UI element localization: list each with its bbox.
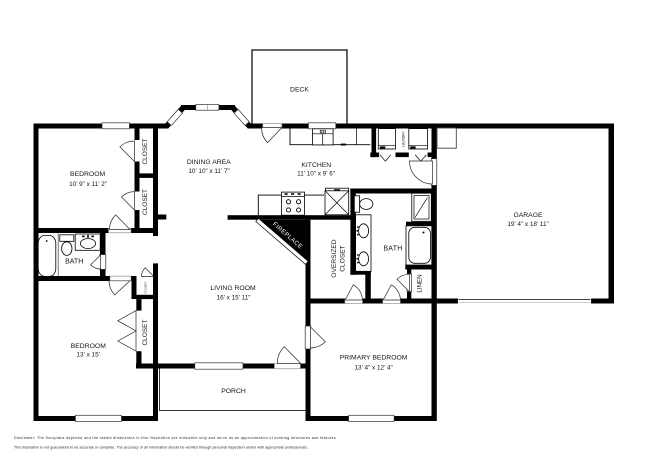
svg-text:LINEN: LINEN bbox=[417, 274, 424, 292]
svg-text:Disclaimer: The floorplans dep: Disclaimer: The floorplans depicted and … bbox=[14, 436, 337, 440]
svg-text:CLOSET: CLOSET bbox=[144, 281, 148, 293]
svg-text:This illustration is not guara: This illustration is not guaranteed to b… bbox=[14, 445, 308, 449]
svg-text:10’ 10” x 11’ 7”: 10’ 10” x 11’ 7” bbox=[188, 168, 229, 175]
svg-text:DINING AREA: DINING AREA bbox=[187, 159, 231, 166]
svg-text:GARAGE: GARAGE bbox=[513, 212, 543, 219]
svg-text:PORCH: PORCH bbox=[221, 388, 246, 395]
svg-text:13’ 4” x 12’ 4”: 13’ 4” x 12’ 4” bbox=[354, 364, 392, 371]
svg-text:11’ 10” x 9’ 6”: 11’ 10” x 9’ 6” bbox=[297, 171, 335, 178]
svg-text:LIVING ROOM: LIVING ROOM bbox=[210, 285, 256, 292]
svg-text:16’ x 15’ 11”: 16’ x 15’ 11” bbox=[217, 295, 251, 302]
svg-text:KITCHEN: KITCHEN bbox=[301, 162, 331, 169]
svg-text:CLOSET: CLOSET bbox=[142, 189, 149, 215]
svg-text:LAUNDRY: LAUNDRY bbox=[401, 130, 405, 146]
svg-text:BEDROOM: BEDROOM bbox=[71, 343, 106, 350]
svg-text:PRIMARY BEDROOM: PRIMARY BEDROOM bbox=[340, 355, 408, 362]
svg-text:OVERSIZED: OVERSIZED bbox=[331, 239, 338, 277]
svg-text:10’ 9” x 11’ 2”: 10’ 9” x 11’ 2” bbox=[69, 181, 107, 188]
svg-text:DECK: DECK bbox=[290, 86, 309, 93]
svg-text:BATH: BATH bbox=[65, 258, 83, 265]
svg-text:BATH: BATH bbox=[383, 245, 402, 252]
svg-text:BEDROOM: BEDROOM bbox=[70, 171, 105, 178]
svg-text:CLOSET: CLOSET bbox=[340, 245, 347, 271]
svg-text:13’ x 15’: 13’ x 15’ bbox=[77, 351, 101, 358]
svg-text:CLOSET: CLOSET bbox=[142, 319, 149, 345]
svg-text:CLOSET: CLOSET bbox=[142, 138, 149, 164]
svg-text:19’ 4” x 18’ 11”: 19’ 4” x 18’ 11” bbox=[507, 221, 548, 228]
